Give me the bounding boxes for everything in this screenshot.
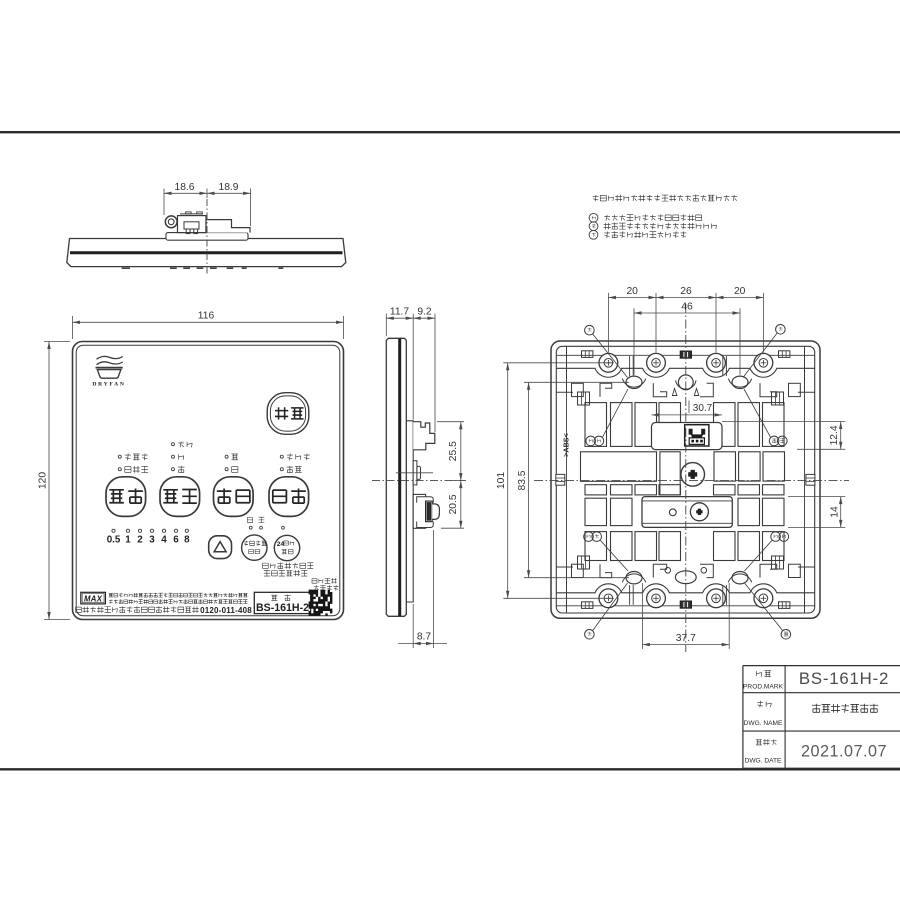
svg-text:12.4: 12.4 — [829, 425, 840, 445]
svg-text:14: 14 — [829, 506, 840, 518]
svg-text:4: 4 — [161, 534, 167, 545]
svg-text:9.2: 9.2 — [417, 307, 432, 318]
svg-text:1: 1 — [125, 534, 131, 545]
svg-text:11.7: 11.7 — [390, 307, 410, 318]
svg-text:101: 101 — [496, 472, 507, 489]
svg-text:>ABS<: >ABS< — [562, 433, 571, 457]
svg-text:BS-161H-2: BS-161H-2 — [799, 669, 889, 688]
svg-text:DWG. NAME: DWG. NAME — [744, 720, 783, 727]
svg-text:83.5: 83.5 — [517, 470, 528, 490]
svg-text:25.5: 25.5 — [448, 441, 459, 461]
svg-text:18.6: 18.6 — [174, 182, 194, 193]
svg-text:3: 3 — [149, 534, 155, 545]
svg-text:18.9: 18.9 — [218, 182, 238, 193]
svg-text:20: 20 — [626, 286, 638, 297]
svg-text:8.7: 8.7 — [417, 632, 432, 643]
svg-text:116: 116 — [198, 311, 215, 322]
svg-text:6: 6 — [173, 534, 179, 545]
svg-text:MAX: MAX — [84, 595, 103, 604]
svg-text:120: 120 — [38, 472, 49, 489]
svg-text:20.5: 20.5 — [448, 494, 459, 514]
svg-text:26: 26 — [680, 286, 692, 297]
svg-text:8: 8 — [184, 534, 190, 545]
svg-text:DWG. DATE: DWG. DATE — [745, 757, 782, 764]
svg-text:30.7: 30.7 — [693, 403, 713, 414]
svg-text:46: 46 — [681, 301, 693, 312]
svg-text:0120-011-408: 0120-011-408 — [200, 606, 252, 615]
svg-text:24: 24 — [277, 541, 285, 548]
svg-text:DRYFAN: DRYFAN — [92, 382, 125, 388]
svg-text:20: 20 — [734, 286, 746, 297]
svg-text:2: 2 — [137, 534, 143, 545]
svg-text:0.5: 0.5 — [107, 534, 121, 545]
svg-text:PROD.MARK: PROD.MARK — [743, 683, 784, 690]
svg-text:2021.07.07: 2021.07.07 — [801, 743, 887, 761]
svg-text:37.7: 37.7 — [676, 633, 696, 644]
svg-text:BS-161H-2: BS-161H-2 — [256, 602, 309, 614]
